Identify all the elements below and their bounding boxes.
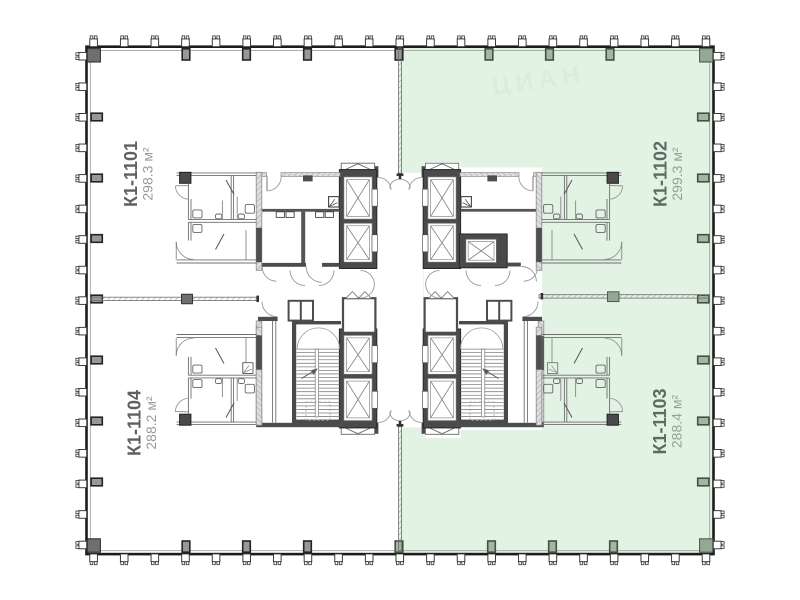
svg-text:К1-1104: К1-1104 [125,390,145,456]
svg-text:299.3 м²: 299.3 м² [669,147,685,201]
svg-text:К1-1103: К1-1103 [650,388,670,454]
svg-text:К1-1101: К1-1101 [121,141,141,207]
svg-text:288.4 м²: 288.4 м² [669,395,685,449]
svg-text:298.3 м²: 298.3 м² [140,147,156,201]
svg-text:288.2 м²: 288.2 м² [143,396,159,450]
svg-text:К1-1102: К1-1102 [651,141,671,207]
